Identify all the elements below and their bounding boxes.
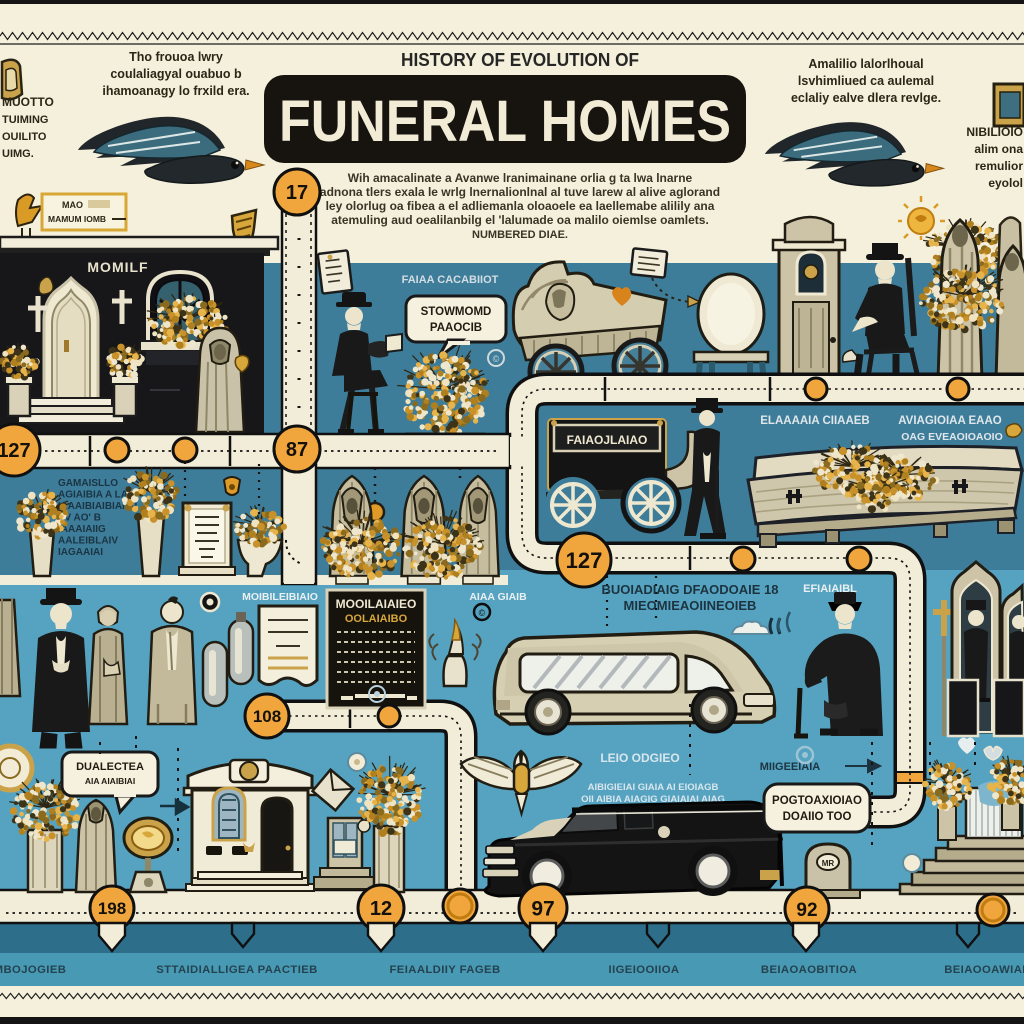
svg-text:©: ©: [479, 608, 486, 618]
svg-text:LEIO ODGIEO: LEIO ODGIEO: [600, 751, 679, 765]
svg-text:lsvhimliued ca aulemal: lsvhimliued ca aulemal: [798, 74, 934, 88]
svg-text:remulior: remulior: [975, 159, 1023, 173]
svg-text:FEIAALDIIY FAGEB: FEIAALDIIY FAGEB: [389, 964, 500, 976]
svg-text:MIIGEEIAIA: MIIGEEIAIA: [760, 761, 821, 773]
svg-text:127: 127: [0, 440, 31, 462]
svg-text:POGTOAXIOIAO: POGTOAXIOIAO: [772, 795, 862, 807]
svg-text:IAGAAIAI: IAGAAIAI: [58, 547, 103, 558]
svg-text:Amalilio lalorlhoual: Amalilio lalorlhoual: [808, 57, 923, 71]
svg-text:MOOILAIAIEO: MOOILAIAIEO: [336, 597, 417, 611]
svg-text:©: ©: [493, 354, 500, 364]
svg-text:STTAIDIALLIGEA PAACTIEB: STTAIDIALLIGEA PAACTIEB: [156, 964, 318, 976]
svg-text:FAIAA CACABIIOT: FAIAA CACABIIOT: [402, 274, 499, 286]
svg-text:Tho frouoa lwry: Tho frouoa lwry: [129, 50, 223, 64]
svg-text:MUOTTO: MUOTTO: [2, 95, 54, 109]
svg-text:AALEIBLAIV: AALEIBLAIV: [58, 536, 118, 547]
svg-text:MR: MR: [822, 859, 835, 868]
svg-text:12: 12: [370, 898, 392, 920]
svg-text:FAIAOJLAIAO: FAIAOJLAIAO: [567, 433, 648, 447]
svg-text:alim ona: alim ona: [974, 142, 1023, 156]
svg-text:STOWMOMD: STOWMOMD: [421, 306, 492, 318]
svg-text:BUOIADIAIG DFAODOAIE 18: BUOIADIAIG DFAODOAIE 18: [602, 582, 779, 597]
svg-text:DUALECTEA: DUALECTEA: [76, 761, 144, 773]
svg-text:coulaliagyal ouabuo b: coulaliagyal ouabuo b: [110, 67, 242, 81]
svg-text:OAG EVEAOIOAOIO: OAG EVEAOIOAOIO: [901, 431, 1003, 443]
svg-text:97: 97: [531, 898, 554, 921]
svg-text:AIBIGIEIAI GIAIA AI EIOIAGB: AIBIGIEIAI GIAIA AI EIOIAGB: [588, 782, 719, 793]
svg-text:AIAA GIAIB: AIAA GIAIB: [469, 591, 527, 603]
svg-text:ley olorlug oa fibea a el: ley olorlug oa fibea a el adliemanla olo…: [326, 199, 715, 213]
svg-text:AIA AIAIBIAI: AIA AIAIBIAI: [85, 776, 135, 786]
svg-text:atemuling aud oealilanbilg: atemuling aud oealilanbilg el 'lalumade …: [331, 213, 709, 227]
svg-text:OUILITO: OUILITO: [2, 131, 47, 143]
svg-text:MIEOMIEAOIINEOIEB: MIEOMIEAOIINEOIEB: [624, 598, 757, 613]
svg-text:DOAIIO TOO: DOAIIO TOO: [783, 811, 852, 823]
svg-text:MBOJOGIEB: MBOJOGIEB: [0, 964, 66, 976]
svg-text:UIMG.: UIMG.: [2, 148, 34, 160]
svg-text:ihamoanagy lo frxild era.: ihamoanagy lo frxild era.: [102, 84, 249, 98]
svg-text:198: 198: [98, 899, 126, 918]
svg-text:AGIAIBIA A LA: AGIAIBIA A LA: [58, 490, 128, 501]
svg-text:eyolol: eyolol: [988, 176, 1023, 190]
svg-text:127: 127: [566, 548, 603, 573]
svg-text:MAMUM IOMB: MAMUM IOMB: [48, 214, 106, 224]
svg-text:BEIAOOAWIAI: BEIAOOAWIAI: [944, 964, 1024, 976]
svg-text:OOLAIAIBO: OOLAIAIBO: [345, 613, 408, 625]
svg-text:MAO: MAO: [62, 200, 83, 210]
svg-text:ELAAAAIA CIIAAEB: ELAAAAIA CIIAAEB: [760, 415, 869, 427]
svg-text:IIGEIOOIIOA: IIGEIOOIIOA: [609, 964, 680, 976]
svg-text:MOMILF: MOMILF: [87, 259, 148, 275]
svg-text:87: 87: [286, 439, 308, 461]
svg-text:NIBILIOIO: NIBILIOIO: [966, 125, 1023, 139]
svg-text:NUMBERED DIAE.: NUMBERED DIAE.: [472, 229, 568, 241]
svg-text:TUIMING: TUIMING: [2, 114, 48, 126]
svg-text:eclaliy ealve dlera revlge.: eclaliy ealve dlera revlge.: [791, 91, 941, 105]
svg-text:MOIBILEIBIAIO: MOIBILEIBIAIO: [242, 591, 318, 603]
svg-text:HISTORY OF EVOLUTION OF: HISTORY OF EVOLUTION OF: [401, 50, 639, 70]
svg-text:AVIAGIOIAA EAAO: AVIAGIOIAA EAAO: [898, 415, 1002, 427]
svg-text:BEIAOAOBITIOA: BEIAOAOBITIOA: [761, 964, 857, 976]
svg-text:adnona tlers exala le wrlg: adnona tlers exala le wrlg lnernalionlna…: [320, 185, 720, 199]
svg-text:92: 92: [796, 900, 817, 921]
svg-text:108: 108: [253, 707, 281, 726]
svg-text:GAMAISLLO: GAMAISLLO: [58, 478, 118, 489]
svg-text:17: 17: [286, 182, 308, 204]
svg-text:Wih amacalinate a Avanwe lrani: Wih amacalinate a Avanwe lranimainane or…: [348, 171, 693, 185]
svg-text:FUNERAL HOMES: FUNERAL HOMES: [279, 89, 731, 154]
svg-text:PAAOCIB: PAAOCIB: [430, 322, 482, 334]
